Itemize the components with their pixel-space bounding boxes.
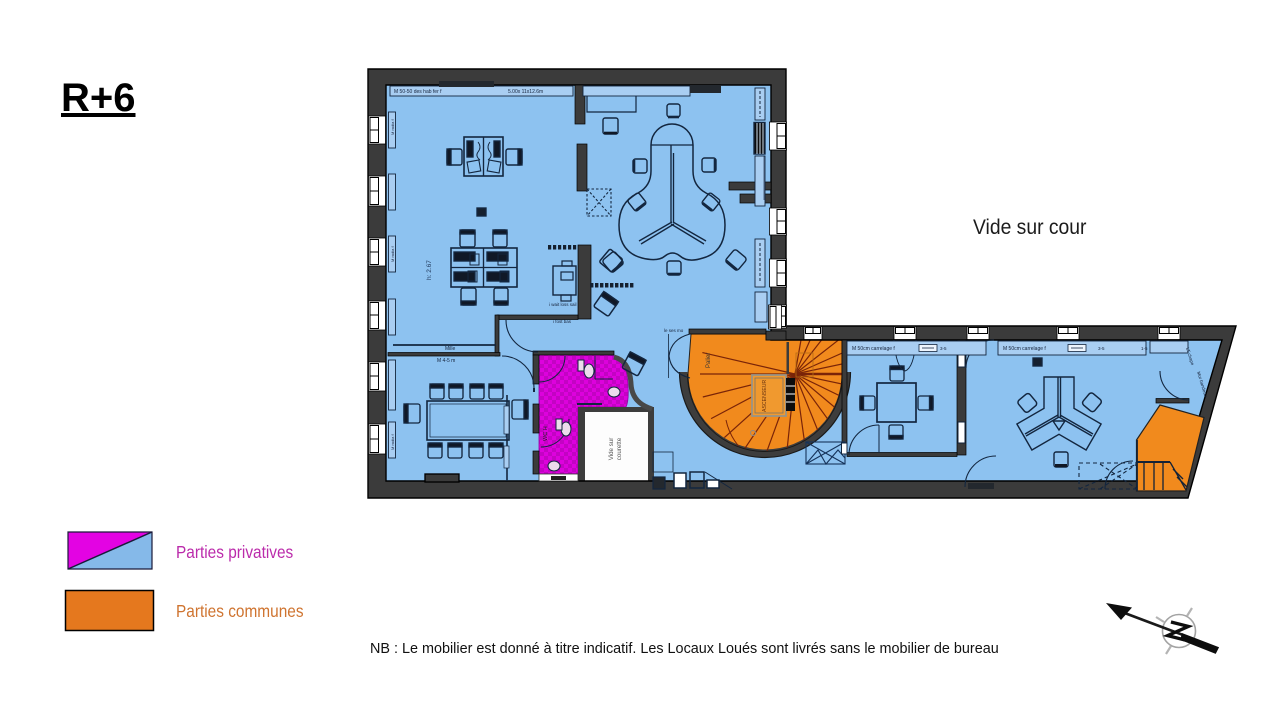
svg-text:M 50cm carrelage f: M 50cm carrelage f [852, 346, 895, 352]
svg-text:Palier: Palier [706, 353, 712, 368]
svg-text:3-5: 3-5 [940, 346, 947, 351]
svg-text:M 50cm carrelage f: M 50cm carrelage f [1003, 346, 1046, 352]
svg-text:WC H: WC H [543, 426, 549, 441]
svg-text:ASCENSEUR: ASCENSEUR [762, 379, 768, 412]
svg-text:M radia f: M radia f [390, 434, 395, 450]
svg-text:i fost bas: i fost bas [553, 319, 572, 324]
svg-text:Mille: Mille [445, 346, 455, 352]
svg-text:5.00x 11x12.6m: 5.00x 11x12.6m [508, 89, 543, 95]
svg-text:M radia f: M radia f [390, 246, 395, 262]
svg-text:1-5: 1-5 [1141, 346, 1148, 351]
svg-text:3-5: 3-5 [1098, 346, 1105, 351]
svg-text:h: 2.67: h: 2.67 [426, 260, 433, 280]
svg-text:M 4-5 m: M 4-5 m [437, 358, 455, 364]
svg-text:Vide sur: Vide sur [608, 438, 615, 461]
svg-text:courette: courette [616, 437, 623, 460]
svg-text:M radia f: M radia f [390, 119, 395, 135]
svg-text:i wait loss sail: i wait loss sail [549, 302, 577, 307]
svg-text:le ses mo: le ses mo [664, 328, 684, 333]
svg-text:M 50-50 des hab fer f: M 50-50 des hab fer f [394, 89, 442, 95]
